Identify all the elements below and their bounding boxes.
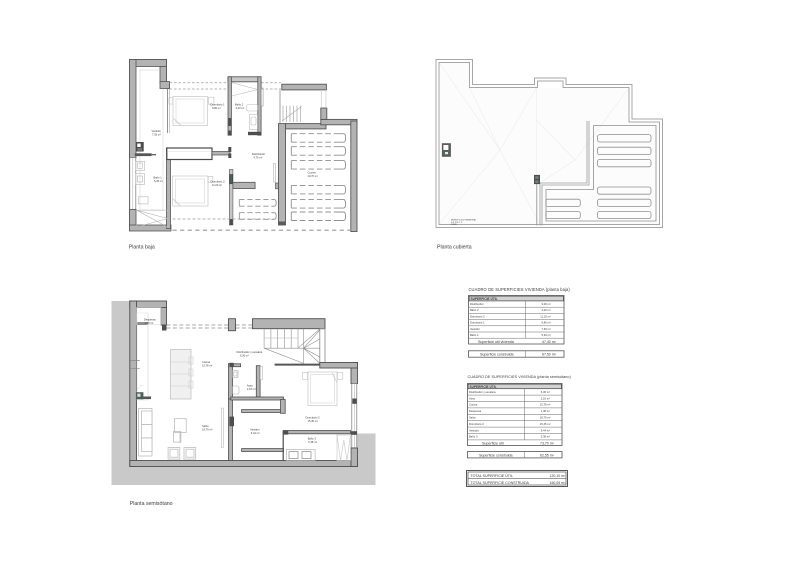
svg-text:Cocina: Cocina: [202, 360, 211, 364]
svg-text:15,45 m²: 15,45 m²: [540, 422, 551, 426]
svg-text:Planta semisótano: Planta semisótano: [130, 501, 173, 507]
svg-text:Planta cubierta: Planta cubierta: [437, 245, 472, 251]
svg-text:7,35 m²: 7,35 m²: [542, 327, 551, 331]
svg-text:6,36 m²: 6,36 m²: [240, 354, 249, 358]
svg-text:Cocina: Cocina: [308, 171, 317, 175]
svg-text:Baño 1: Baño 1: [154, 176, 163, 180]
svg-text:Vestidor: Vestidor: [250, 428, 260, 432]
svg-text:11,00 m²: 11,00 m²: [212, 183, 222, 187]
svg-text:Dormitorio 1: Dormitorio 1: [470, 321, 485, 325]
svg-text:Vestidor: Vestidor: [152, 129, 162, 133]
svg-text:15,45 m²: 15,45 m²: [308, 419, 318, 423]
svg-text:5,38 m²: 5,38 m²: [541, 435, 550, 439]
svg-text:Baño 3: Baño 3: [308, 437, 317, 441]
svg-text:Superficie útil vivienda: Superficie útil vivienda: [478, 340, 514, 344]
svg-text:62,55 m²: 62,55 m²: [540, 453, 555, 457]
svg-text:5,45 m²: 5,45 m²: [154, 179, 163, 183]
svg-text:Distribuidor y escalera: Distribuidor y escalera: [469, 390, 496, 394]
svg-text:Baño 2: Baño 2: [470, 308, 479, 312]
svg-text:Baño 2: Baño 2: [235, 103, 244, 107]
svg-text:4,76 m²: 4,76 m²: [254, 156, 263, 160]
svg-text:4,20 m²: 4,20 m²: [236, 106, 245, 110]
svg-text:Superficie construida: Superficie construida: [479, 453, 513, 457]
svg-text:15,78 m²: 15,78 m²: [202, 364, 212, 368]
svg-text:Salón: Salón: [202, 424, 209, 428]
svg-text:Dormitorio 2: Dormitorio 2: [211, 180, 226, 184]
svg-text:1,48 m²: 1,48 m²: [541, 409, 550, 413]
svg-text:73,70 m²: 73,70 m²: [540, 441, 555, 445]
svg-text:6,36 m²: 6,36 m²: [541, 390, 550, 394]
svg-text:Baño 1: Baño 1: [470, 333, 479, 337]
svg-text:Aseo: Aseo: [469, 396, 476, 400]
svg-text:Planta baja: Planta baja: [129, 245, 155, 251]
svg-text:19,79 m²: 19,79 m²: [202, 428, 212, 432]
svg-text:5,93 m²: 5,93 m²: [542, 333, 551, 337]
svg-text:67,50 m²: 67,50 m²: [542, 353, 557, 357]
svg-text:9,86 m²: 9,86 m²: [542, 321, 551, 325]
svg-text:9,44 m²: 9,44 m²: [251, 431, 260, 435]
svg-text:Superficie construida: Superficie construida: [480, 353, 514, 357]
svg-text:120,10 m²: 120,10 m²: [550, 474, 567, 478]
svg-text:4,06 m²: 4,06 m²: [542, 308, 551, 312]
svg-text:Distribuidor: Distribuidor: [252, 152, 265, 156]
svg-text:SUPERFICIE ÚTIL: SUPERFICIE ÚTIL: [470, 384, 497, 389]
svg-text:Vestidor: Vestidor: [469, 428, 479, 432]
svg-text:47,40 m²: 47,40 m²: [542, 340, 557, 344]
svg-text:10,70 m²: 10,70 m²: [308, 174, 318, 178]
svg-text:TOTAL SUPERFICIE CONSTRUIDA: TOTAL SUPERFICIE CONSTRUIDA: [471, 481, 530, 485]
svg-text:5,38 m²: 5,38 m²: [308, 440, 317, 444]
svg-text:11,25 m²: 11,25 m²: [540, 314, 551, 318]
svg-text:2,16 m²: 2,16 m²: [541, 396, 550, 400]
svg-text:160,05 m²: 160,05 m²: [550, 481, 567, 485]
svg-text:SUPERFICIE ÚTIL: SUPERFICIE ÚTIL: [471, 296, 498, 301]
svg-text:Salón: Salón: [469, 416, 476, 420]
svg-text:2,16 m²: 2,16 m²: [247, 387, 256, 391]
svg-text:Despensa: Despensa: [144, 318, 156, 322]
svg-text:9,44 m²: 9,44 m²: [541, 428, 550, 432]
svg-text:Dormitorio 3: Dormitorio 3: [469, 422, 484, 426]
svg-text:CUADRO DE SUPERFICIES VIVIENDA: CUADRO DE SUPERFICIES VIVIENDA (planta b…: [469, 287, 571, 292]
svg-text:Vestidor: Vestidor: [470, 327, 480, 331]
svg-text:Despensa: Despensa: [469, 409, 482, 413]
svg-text:Distribuidor y escalera: Distribuidor y escalera: [237, 350, 263, 354]
svg-text:Superficie útil: Superficie útil: [482, 441, 504, 445]
svg-text:Dormitorio 3: Dormitorio 3: [306, 416, 321, 420]
svg-text:CUADRO DE SUPERFICIES VIVIENDA: CUADRO DE SUPERFICIES VIVIENDA (planta s…: [468, 375, 572, 379]
svg-text:19,79 m²: 19,79 m²: [540, 416, 551, 420]
svg-text:Distribuidor: Distribuidor: [470, 302, 484, 306]
svg-text:Dormitorio 1: Dormitorio 1: [211, 103, 226, 107]
svg-text:Baño 3: Baño 3: [469, 435, 478, 439]
svg-text:9,80 m²: 9,80 m²: [212, 106, 221, 110]
svg-text:SUMID.: SUMID.: [451, 224, 458, 226]
svg-text:7,35 m²: 7,35 m²: [152, 133, 161, 137]
svg-text:Cocina: Cocina: [469, 403, 478, 407]
svg-text:15,78 m²: 15,78 m²: [540, 403, 551, 407]
svg-text:Aseo: Aseo: [247, 384, 253, 388]
svg-text:3,09 m²: 3,09 m²: [542, 302, 551, 306]
svg-text:TOTAL SUPERFICIE ÚTIL: TOTAL SUPERFICIE ÚTIL: [471, 473, 513, 478]
svg-text:1,48 m²: 1,48 m²: [145, 321, 154, 325]
svg-text:Dormitorio 2: Dormitorio 2: [470, 314, 485, 318]
